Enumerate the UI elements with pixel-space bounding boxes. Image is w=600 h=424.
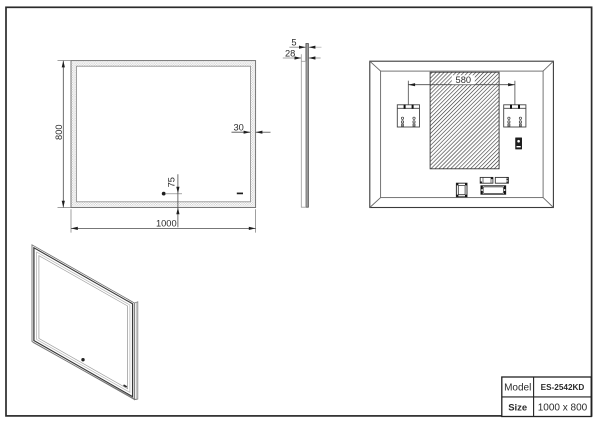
- svg-text:30: 30: [234, 122, 244, 132]
- svg-text:Size: Size: [508, 402, 527, 413]
- svg-text:1000 x 800: 1000 x 800: [538, 403, 588, 414]
- svg-text:1000: 1000: [156, 219, 177, 229]
- svg-text:28: 28: [285, 48, 295, 58]
- svg-text:5: 5: [291, 38, 296, 48]
- svg-text:580: 580: [456, 75, 472, 85]
- svg-text:75: 75: [167, 177, 177, 187]
- svg-text:ES-2542KD: ES-2542KD: [541, 383, 585, 392]
- svg-text:800: 800: [54, 124, 64, 140]
- svg-text:Model: Model: [504, 383, 531, 394]
